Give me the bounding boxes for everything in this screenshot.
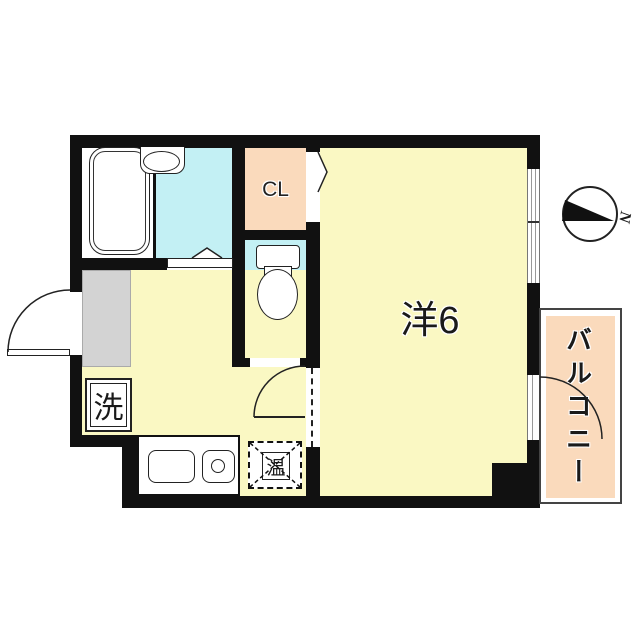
water-heater-core: 温 (262, 452, 290, 480)
hall-room-open-passage (306, 368, 320, 447)
wall-bottom (122, 496, 540, 508)
wall-hall-right (306, 447, 320, 496)
closet-label: CL (245, 178, 306, 202)
floor-plan: 洗 温 バルコニー N CL 洋6 (0, 0, 640, 640)
bathtub-inner (93, 151, 146, 251)
bathroom-door-threshold (167, 258, 233, 268)
entrance-door-opening (70, 292, 82, 355)
kitchen-sink (148, 450, 195, 483)
kitchen-burner-ring (211, 459, 225, 473)
washing-machine-label: 洗 (90, 383, 127, 427)
window-main-room (527, 169, 540, 283)
washing-machine-box: 洗 (85, 378, 132, 432)
closet-door-opening (306, 152, 320, 222)
toilet-door-threshold (250, 358, 300, 367)
genkan-entry-floor (82, 270, 131, 367)
wall-left-upper (70, 148, 82, 292)
entrance-door-swing-arc (8, 290, 70, 352)
toilet-bowl (257, 269, 298, 320)
wall-mid-vertical (232, 147, 245, 367)
entrance-door-leaf (7, 349, 70, 356)
compass-north-label: N (611, 204, 636, 229)
wall-bath-divider (153, 166, 156, 258)
wall-bathroom-bottom (82, 258, 167, 270)
wall-notch-horizontal (70, 435, 137, 447)
western-room-label: 洋6 (375, 294, 485, 338)
water-heater-label: 温 (263, 453, 289, 479)
washbasin-bowl (143, 151, 180, 172)
wall-left-lower (70, 355, 82, 447)
balcony-label: バルコニー (563, 318, 593, 498)
open-passage-dashed-line (311, 368, 313, 447)
wall-toilet-bottom-left (232, 358, 250, 367)
compass-circle (562, 186, 618, 242)
corner-pillar (492, 463, 540, 496)
wall-closet-right-bottom (306, 222, 320, 368)
wall-right-upper (527, 148, 540, 169)
